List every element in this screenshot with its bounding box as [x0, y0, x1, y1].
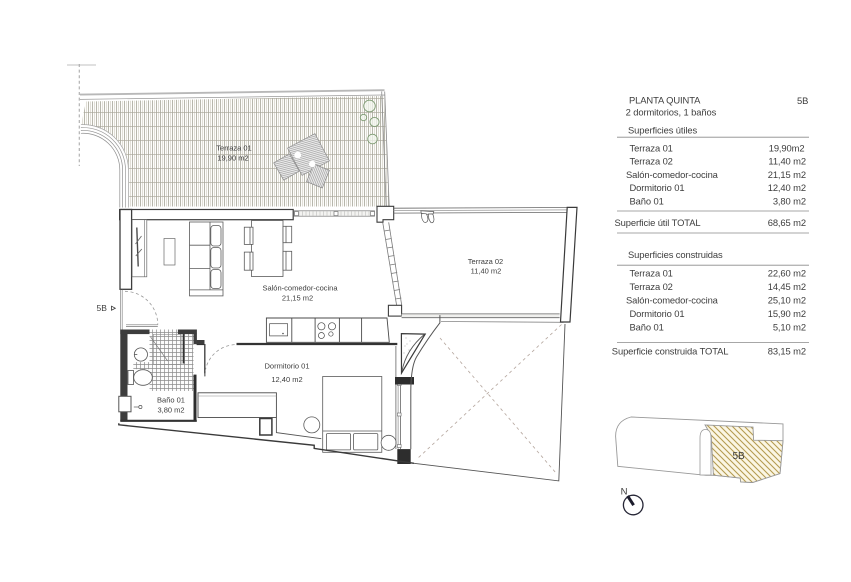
svg-text:Dormitorio 01: Dormitorio 01: [264, 362, 309, 371]
svg-text:15,90 m2: 15,90 m2: [768, 308, 806, 319]
svg-text:14,45 m2: 14,45 m2: [768, 281, 806, 292]
svg-text:Dormitorio 01: Dormitorio 01: [630, 182, 685, 193]
svg-text:19,90m2: 19,90m2: [769, 142, 805, 153]
svg-text:Baño 01: Baño 01: [630, 322, 664, 333]
svg-text:5,10 m2: 5,10 m2: [773, 322, 806, 333]
svg-text:Terraza 02: Terraza 02: [630, 156, 673, 167]
svg-text:Terraza 01: Terraza 01: [216, 144, 251, 153]
svg-text:Superficies construidas: Superficies construidas: [628, 249, 723, 260]
svg-text:21,15 m2: 21,15 m2: [282, 294, 313, 303]
svg-text:Superficie construida TOTAL: Superficie construida TOTAL: [612, 346, 729, 357]
svg-text:3,80 m2: 3,80 m2: [157, 406, 184, 415]
svg-text:5B: 5B: [797, 95, 808, 106]
svg-text:12,40 m2: 12,40 m2: [768, 182, 806, 193]
svg-text:19,90 m2: 19,90 m2: [217, 154, 248, 163]
svg-text:Salón-comedor-cocina: Salón-comedor-cocina: [626, 295, 719, 306]
svg-text:11,40 m2: 11,40 m2: [768, 156, 806, 167]
svg-text:21,15 m2: 21,15 m2: [768, 169, 806, 180]
svg-text:68,65 m2: 68,65 m2: [768, 217, 806, 228]
svg-text:Superficie útil TOTAL: Superficie útil TOTAL: [615, 217, 701, 228]
svg-text:5B: 5B: [733, 451, 746, 462]
svg-text:Terraza 01: Terraza 01: [630, 268, 673, 279]
svg-text:Dormitorio 01: Dormitorio 01: [630, 308, 685, 319]
svg-text:22,60 m2: 22,60 m2: [768, 268, 806, 279]
svg-text:83,15 m2: 83,15 m2: [768, 346, 806, 357]
svg-text:3,80 m2: 3,80 m2: [773, 196, 806, 207]
svg-text:12,40 m2: 12,40 m2: [271, 375, 302, 384]
svg-text:2 dormitorios, 1 baños: 2 dormitorios, 1 baños: [626, 107, 717, 118]
svg-text:Baño 01: Baño 01: [630, 196, 664, 207]
svg-text:Terraza 01: Terraza 01: [630, 142, 673, 153]
svg-text:5B: 5B: [97, 303, 108, 313]
svg-text:25,10 m2: 25,10 m2: [768, 295, 806, 306]
svg-text:11,40 m2: 11,40 m2: [471, 267, 502, 276]
svg-text:Baño 01: Baño 01: [157, 396, 185, 405]
svg-text:Terraza 02: Terraza 02: [630, 281, 673, 292]
svg-text:Superficies útiles: Superficies útiles: [628, 125, 697, 136]
svg-text:Terraza 02: Terraza 02: [468, 257, 503, 266]
svg-text:Salón-comedor-cocina: Salón-comedor-cocina: [262, 284, 338, 293]
svg-text:Salón-comedor-cocina: Salón-comedor-cocina: [626, 169, 719, 180]
svg-text:PLANTA QUINTA: PLANTA QUINTA: [629, 95, 701, 106]
svg-text:N: N: [621, 487, 628, 498]
